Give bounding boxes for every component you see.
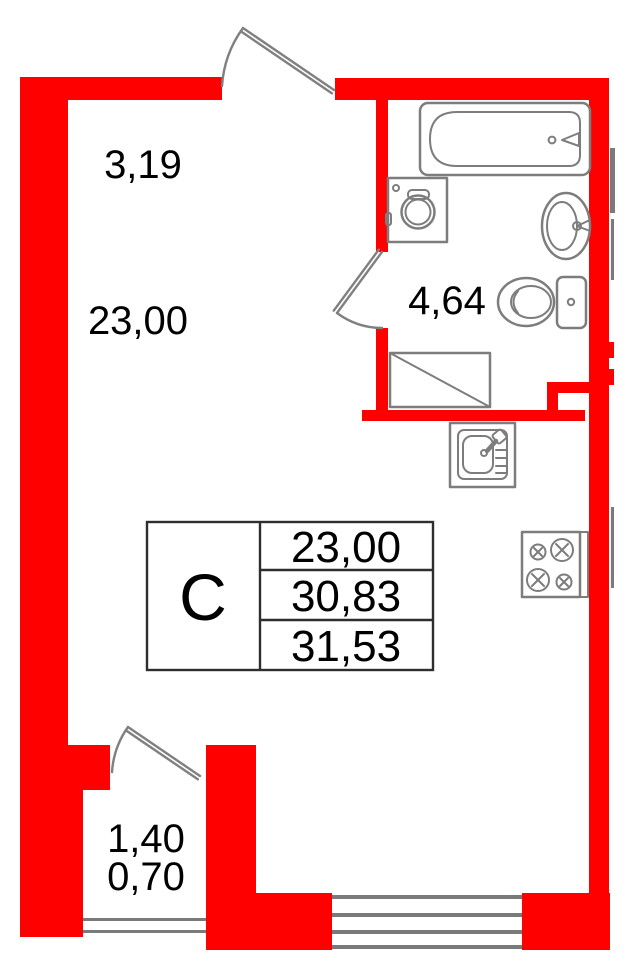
main-room-area-label: 23,00 [88,299,188,343]
wall-nub-upper [608,342,614,358]
washbasin-icon [542,193,590,259]
wall-left-balcony-jamb [20,745,110,790]
bathroom-area-label: 4,64 [408,279,486,323]
wall-left-upper [20,77,68,745]
stove-icon [522,532,588,597]
stamp-value-with-balcony: 31,53 [291,622,401,671]
floor-plan: С 23,00 30,83 31,53 3,19 23,00 4,64 1,40… [0,0,632,972]
wall-bottom-left-block [206,893,332,950]
main-room-width-label: 3,19 [104,143,182,187]
stamp-room-type: С [179,560,227,634]
burner-icon [527,569,549,591]
wall-bathroom-left-upper [376,100,388,252]
balcony-glazing-icon [83,918,206,933]
wall-left-lower [20,790,83,937]
balcony-door-swing-icon [112,727,200,779]
entrance-door-swing-icon [222,28,334,93]
washing-machine-icon [386,178,447,242]
burner-icon [531,545,546,560]
bathtub-icon [420,103,590,175]
kitchen-sink-icon [450,423,515,487]
bathroom-door-swing-icon [334,250,382,328]
window-icon [611,219,614,280]
burner-icon [557,575,572,590]
balcony-area-label: 0,70 [107,855,185,899]
window-icon [332,895,522,949]
window-icon [611,507,614,588]
stamp-value-living: 23,00 [291,523,401,572]
area-stamp: С 23,00 30,83 31,53 [147,522,433,671]
wall-bathroom-left-lower [376,328,388,421]
wall-right [589,78,609,950]
toilet-icon [498,277,586,328]
wall-nub-lower [608,369,614,385]
wall-step-leg [547,382,558,421]
stamp-value-total: 30,83 [291,572,401,621]
wall-balcony-partition [206,745,256,893]
wall-top-right [335,78,609,100]
window-icon [610,148,615,213]
burner-icon [551,539,573,561]
shower-tray-icon [390,353,490,407]
